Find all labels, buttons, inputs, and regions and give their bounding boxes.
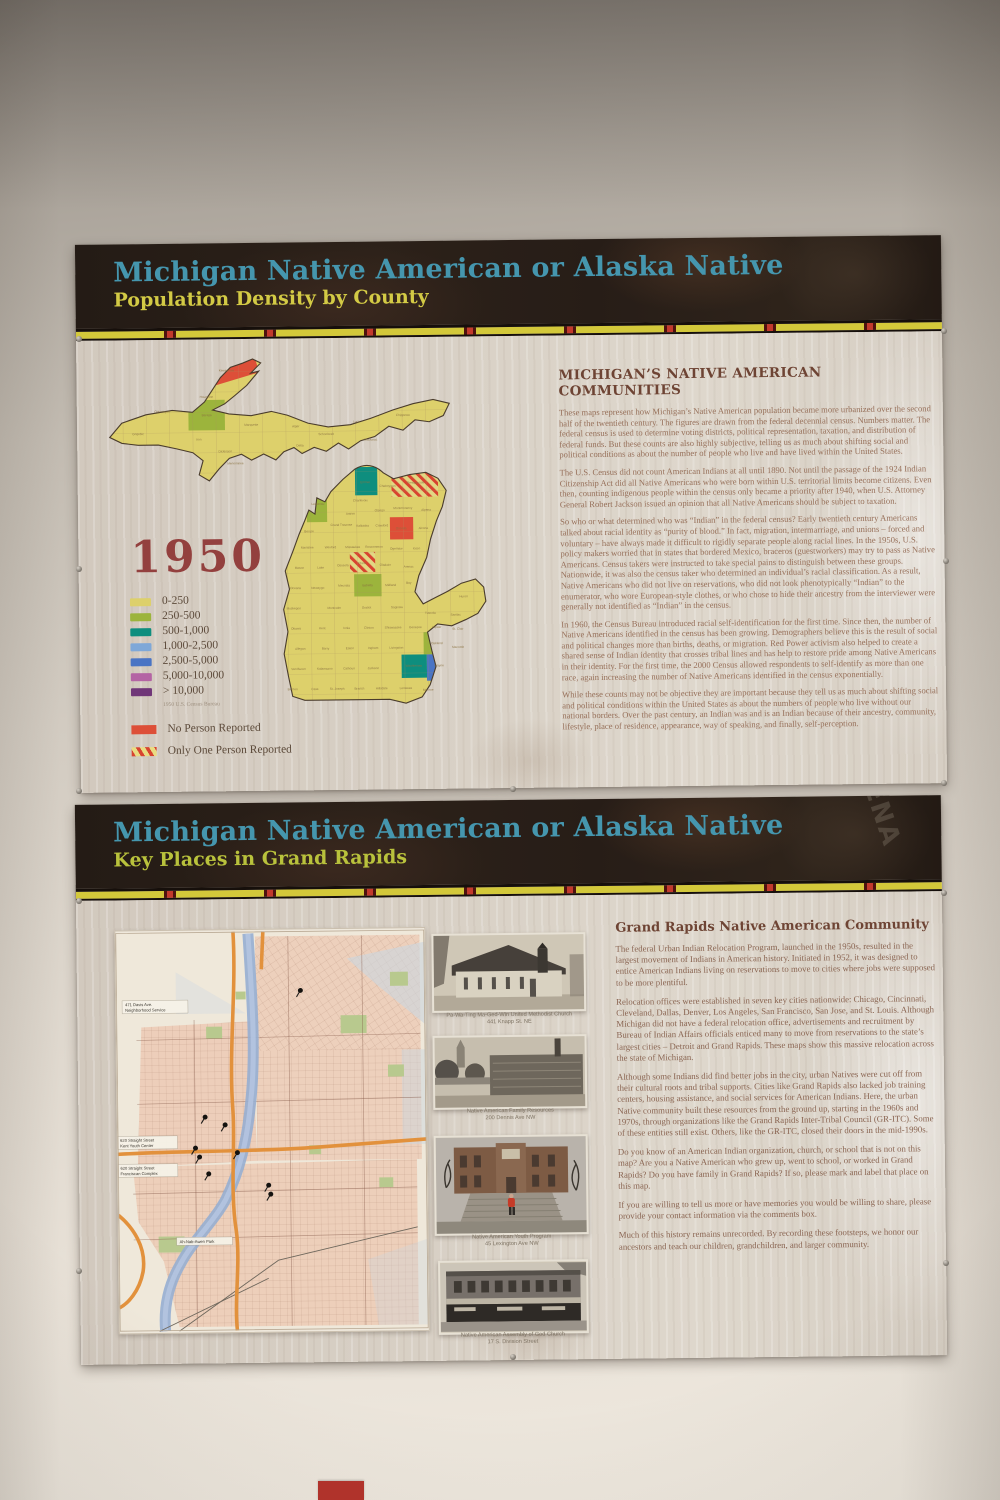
legend-swatch [130,598,151,606]
gallery-wall-photo: Michigan Native American or Alaska Nativ… [0,0,1000,1500]
map-label: 471 Davis Ave. [125,1002,152,1007]
svg-text:Jackson: Jackson [368,666,380,670]
svg-text:Mason: Mason [295,566,305,570]
legend-label: > 10,000 [163,685,204,696]
legend-swatch [131,658,152,666]
svg-text:Bay: Bay [406,581,412,585]
svg-text:Mecosta: Mecosta [338,583,350,587]
legend-swatch [130,613,151,621]
fastener-dot [510,786,516,792]
svg-text:Roscommon: Roscommon [365,545,383,549]
svg-text:Baraga: Baraga [202,413,212,417]
svg-text:Keweenaw: Keweenaw [219,368,235,372]
svg-text:Clinton: Clinton [364,626,374,630]
svg-text:Hillsdale: Hillsdale [376,686,388,690]
svg-text:Iosco: Iosco [413,546,421,550]
legend-label: Only One Person Reported [168,744,292,757]
svg-text:Houghton: Houghton [200,395,214,399]
svg-text:Dickinson: Dickinson [218,449,232,453]
svg-text:Alger: Alger [292,424,299,428]
essay-paragraph: If you are willing to tell us more or ha… [618,1196,940,1222]
legend-row: > 10,000 [131,682,351,699]
photo-storefront [438,1259,589,1335]
map-label: Ah-Nab-Awen Park [180,1239,216,1244]
svg-text:Presque Isle: Presque Isle [407,480,425,484]
svg-text:Lapeer: Lapeer [432,625,442,629]
essay-paragraph: While these counts may not be objective … [562,685,940,732]
svg-text:Crawford: Crawford [375,523,388,527]
svg-text:Gogebic: Gogebic [132,432,144,436]
svg-text:Antrim: Antrim [346,512,355,516]
svg-text:Kalkaska: Kalkaska [356,524,369,528]
legend-label: 250-500 [162,611,200,622]
map-label: Neighborhood Service [125,1007,166,1012]
essay-paragraph: These maps represent how Michigan’s Nati… [559,403,938,460]
legend-row-no-person: No Person Reported [131,716,351,740]
svg-text:Monroe: Monroe [423,688,434,692]
legend-swatch [131,673,152,681]
legend-swatch [130,643,151,651]
legend-swatch [131,725,156,734]
poster-population-density: Michigan Native American or Alaska Nativ… [75,235,947,793]
poster1-essay-column: MICHIGAN’S NATIVE AMERICAN COMMUNITIES T… [558,363,940,739]
grand-rapids-street-map: 471 Davis Ave. Neighborhood Service 620 … [114,927,430,1335]
svg-text:Lenawee: Lenawee [400,686,413,690]
poster2-banner: ENA Michigan Native American or Alaska N… [75,795,942,889]
legend-swatch [131,688,152,696]
legend-label: No Person Reported [167,722,260,735]
essay-paragraph: In 1960, the Census Bureau introduced ra… [561,615,940,683]
svg-text:Leelanau: Leelanau [311,502,324,506]
fastener-dot [943,558,949,564]
svg-text:Iron: Iron [196,438,202,442]
svg-text:Isabella: Isabella [362,583,373,587]
svg-text:Washtenaw: Washtenaw [406,664,423,668]
svg-text:Charlevoix: Charlevoix [353,498,368,502]
svg-text:Emmet: Emmet [360,480,370,484]
poster2-body: 471 Davis Ave. Neighborhood Service 620 … [76,891,947,1365]
legend-label: 0-250 [162,596,189,607]
svg-text:Mackinac: Mackinac [364,438,378,442]
fastener-dot [510,1354,516,1360]
svg-text:Menominee: Menominee [227,461,244,465]
svg-text:Oceana: Oceana [290,586,301,590]
legend-label: 2,500-5,000 [163,655,219,667]
map-year-label: 1950 [130,531,265,584]
map-legend: 0-250 250-500 500-1,000 1,000-2,500 2,50… [130,592,352,762]
legend-swatch [130,628,151,636]
legend-row-one-person: Only One Person Reported [132,738,352,762]
svg-text:Lake: Lake [317,566,324,570]
essay-paragraph: The federal Urban Indian Relocation Prog… [615,940,937,988]
fastener-dot [941,328,947,334]
essay-paragraph: So who or what determined who was “India… [560,512,939,612]
essay-paragraph: Although some Indians did find better jo… [617,1068,940,1139]
svg-text:Newaygo: Newaygo [311,586,324,590]
svg-text:Osceola: Osceola [337,563,349,567]
svg-text:Wayne: Wayne [434,663,444,667]
svg-text:Shiawassee: Shiawassee [385,625,402,629]
svg-text:Wexford: Wexford [325,545,337,549]
legend-label: 1,000-2,500 [162,640,218,652]
photo-caption: Native American Assembly of God Church 1… [439,1331,587,1347]
fastener-dot [76,788,82,794]
photo-caption: Native American Family Resources 200 Den… [433,1107,587,1123]
legend-swatch-hatched [132,747,157,756]
svg-text:Cheboygan: Cheboygan [379,484,395,488]
svg-text:Branch: Branch [354,686,364,690]
svg-text:Huron: Huron [459,594,468,598]
poster2-essay-column: Grand Rapids Native American Community T… [615,917,941,1261]
svg-text:Manistee: Manistee [301,545,314,549]
svg-text:Luce: Luce [353,420,360,424]
map-label: Franciscan Complex [121,1171,158,1176]
svg-text:Midland: Midland [385,583,396,587]
svg-text:Chippewa: Chippewa [396,413,410,417]
svg-text:Tuscola: Tuscola [425,611,436,615]
svg-text:Otsego: Otsego [375,508,385,512]
svg-text:Gladwin: Gladwin [380,563,392,567]
photo-school [434,1134,589,1236]
svg-text:Ingham: Ingham [368,646,379,650]
essay-paragraph: Relocation offices were established in s… [616,993,939,1064]
fastener-dot [76,336,82,342]
svg-text:Montmorency: Montmorency [393,506,412,510]
svg-text:Macomb: Macomb [452,645,464,649]
poster2-section-heading: Grand Rapids Native American Community [615,917,937,936]
svg-text:Saginaw: Saginaw [391,605,404,609]
fastener-dot [941,890,947,896]
svg-text:Sanilac: Sanilac [451,613,462,617]
poster1-section-heading: MICHIGAN’S NATIVE AMERICAN COMMUNITIES [558,363,936,399]
svg-text:Alcona: Alcona [419,526,429,530]
map-label: Kent Youth Center [120,1143,154,1148]
legend-label: 500-1,000 [162,625,209,637]
photo-caption: Pa-Wa-Ting Ma-Ged-Win United Methodist C… [432,1011,586,1027]
svg-text:Ontonagon: Ontonagon [154,410,170,414]
svg-text:Delta: Delta [296,443,304,447]
svg-text:Grand Traverse: Grand Traverse [330,523,352,527]
svg-text:Benzie: Benzie [304,529,314,533]
artwork-edge-below [318,1481,364,1500]
essay-paragraph: The U.S. Census did not count American I… [559,463,937,510]
legend-source-note: 1950 U.S. Census Bureau [163,700,351,708]
fastener-dot [76,566,82,572]
svg-text:Gratiot: Gratiot [362,605,372,609]
essay-paragraph: Do you know of an American Indian organi… [618,1143,940,1191]
svg-text:Genesee: Genesee [409,625,422,629]
upper-peninsula-highlights [99,348,535,486]
fastener-dot [943,1260,949,1266]
svg-text:Alpena: Alpena [421,508,431,512]
poster1-body: GogebicOntonagonHoughtonKeweenawBaragaIr… [76,331,947,793]
svg-text:Marquette: Marquette [244,423,258,427]
svg-text:Schoolcraft: Schoolcraft [318,432,334,436]
photo-factory [432,1034,587,1110]
svg-text:St. Clair: St. Clair [452,627,463,631]
essay-paragraph: Much of this history remains unrecorded.… [619,1227,941,1253]
svg-text:Missaukee: Missaukee [345,545,360,549]
svg-text:Livingston: Livingston [389,646,403,650]
poster1-banner: Michigan Native American or Alaska Nativ… [75,235,942,329]
poster-key-places: ENA Michigan Native American or Alaska N… [75,795,947,1365]
legend-label: 5,000-10,000 [163,670,224,682]
fastener-dot [941,780,947,786]
fastener-dot [76,1268,82,1274]
svg-text:Arenac: Arenac [404,565,414,569]
svg-text:Ogemaw: Ogemaw [390,546,403,550]
fastener-dot [76,898,82,904]
svg-text:Oscoda: Oscoda [396,526,407,530]
svg-text:Oakland: Oakland [431,641,443,645]
photo-church [431,932,586,1013]
photo-caption: Native American Youth Program 45 Lexingt… [435,1233,589,1249]
svg-text:Clare: Clare [358,561,366,565]
